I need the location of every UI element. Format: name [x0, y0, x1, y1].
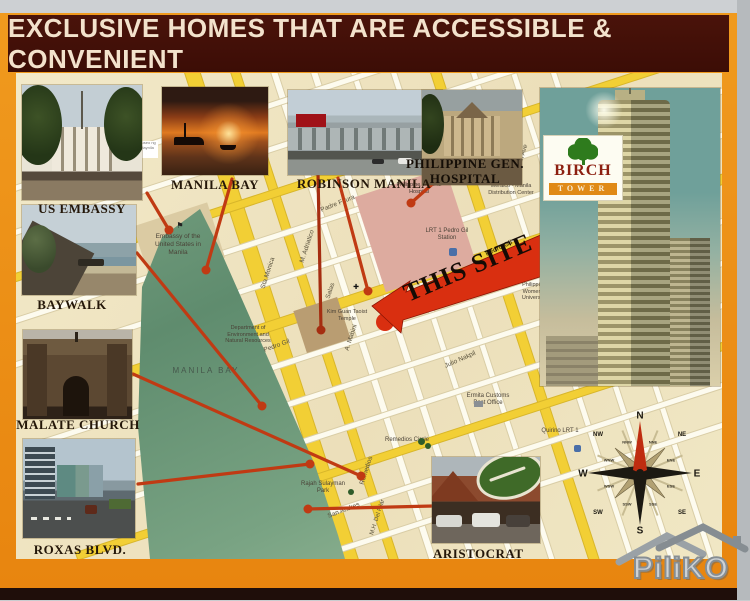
tower-antenna	[629, 88, 631, 94]
boat-silhouette-2	[220, 145, 236, 150]
map-label-manila-bay: MANILA BAY	[166, 366, 246, 376]
watermark: PiliKO	[615, 518, 750, 596]
photo-us-embassy	[22, 85, 142, 200]
compass-sse: SSE	[649, 502, 657, 507]
birch-tower-logo: BIRCH TOWER	[544, 136, 622, 200]
car-dark	[372, 159, 384, 164]
birch-sub-name: TOWER	[549, 183, 617, 195]
flag-icon: ⚑	[176, 221, 184, 231]
aristocrat-roof-gable	[432, 471, 478, 501]
photo-manila-bay	[162, 87, 268, 175]
robinson-window-band	[288, 128, 442, 150]
embassy-tree-right	[104, 87, 142, 161]
label-baywalk: BAYWALK	[37, 297, 106, 313]
baywalk-boat	[78, 259, 104, 266]
compass-nw: NW	[593, 432, 603, 438]
screenshot-root: { "chrome": {"top_strip_color": "#cdd0d3…	[0, 0, 750, 600]
map-label-taoist-temple: Kim Guan Taoist Temple	[324, 309, 370, 322]
boat-mast	[184, 123, 186, 139]
aristocrat-sign	[471, 457, 540, 507]
map-poster: Museo ng Maynila Embassy of the United S…	[16, 73, 722, 559]
robinson-red-sign	[296, 114, 326, 127]
map-label-customs: Ermita Customs Post Office	[460, 393, 516, 407]
aristocrat-car-3	[506, 515, 530, 527]
compass-ssw: SSW	[622, 502, 631, 507]
header-band: EXCLUSIVE HOMES THAT ARE ACCESSIBLE & CO…	[8, 15, 729, 72]
park-icon-south	[418, 438, 425, 445]
roxas-highrise	[25, 447, 55, 499]
compass-w: W	[578, 469, 587, 480]
window-side-strip	[737, 0, 750, 600]
label-aristocrat: ARISTOCRAT	[433, 546, 523, 559]
cross-icon: ✚	[352, 284, 360, 292]
boat-silhouette-1	[174, 137, 204, 145]
compass-wnw: WNW	[604, 458, 614, 463]
map-label-rajah-sulayman: Rajah Sulayman Park	[299, 481, 347, 495]
compass-ese: ESE	[667, 484, 675, 489]
aristocrat-car-1	[436, 515, 462, 527]
photo-roxas-blvd	[23, 439, 135, 538]
compass-ene: ENE	[667, 458, 675, 463]
compass-e: E	[694, 469, 701, 480]
church-tower-left	[27, 344, 47, 416]
tower-sun-glint	[582, 88, 626, 132]
church-tower-right	[107, 344, 127, 416]
label-philippine-gen-hospital: PHILIPPINE GEN. HOSPITAL	[405, 157, 525, 187]
tower-secondary-windows	[670, 238, 710, 386]
pgh-tree	[422, 94, 444, 154]
photo-aristocrat	[432, 457, 540, 543]
label-malate-church: MALATE CHURCH	[16, 417, 140, 433]
aristocrat-sign-script	[489, 466, 526, 482]
compass-sw: SW	[593, 510, 603, 516]
post-office-icon	[474, 401, 483, 407]
header-title: EXCLUSIVE HOMES THAT ARE ACCESSIBLE & CO…	[8, 13, 729, 75]
label-manila-bay: MANILA BAY	[171, 177, 259, 193]
rajah-park-icon	[348, 489, 354, 495]
roxas-median-green	[109, 499, 131, 509]
lrt-station-icon	[449, 248, 457, 256]
roxas-lane-dashes	[31, 517, 71, 520]
pgh-building	[444, 116, 500, 156]
compass-ne: NE	[678, 432, 686, 438]
aristocrat-car-2	[472, 513, 500, 527]
map-label-quirino-lrt: Quirino LRT 1	[540, 428, 580, 435]
embassy-flagpole	[81, 91, 83, 129]
compass-wsw: WSW	[604, 484, 614, 489]
roxas-buildings	[57, 465, 103, 497]
compass-n: N	[636, 411, 643, 422]
window-top-strip	[0, 0, 750, 13]
label-us-embassy: US EMBASSY	[38, 201, 126, 217]
lowrise-buildings	[546, 336, 598, 386]
roxas-vehicle	[85, 505, 97, 514]
map-label-us-embassy-poi: Embassy of the United States in Manila	[150, 233, 206, 256]
watermark-text: PiliKO	[633, 552, 729, 586]
compass-nnw: NNW	[622, 440, 632, 445]
label-roxas-blvd: ROXAS BLVD.	[34, 542, 126, 558]
compass-nne: NNE	[649, 440, 657, 445]
church-cross	[75, 332, 78, 342]
sunset-sun	[162, 87, 268, 175]
church-door-arch	[63, 376, 89, 416]
birch-tower-rendering: BIRCH TOWER	[540, 88, 720, 386]
map-label-denr: Department of Environment and Natural Re…	[221, 325, 275, 345]
map-label-lrt1-station: LRT 1 Pedro Gil Station	[422, 228, 472, 242]
birch-name: BIRCH	[544, 162, 622, 180]
photo-malate-church	[23, 330, 132, 419]
photo-baywalk	[22, 205, 136, 295]
pgh-pediment	[456, 102, 488, 118]
remedios-park-icon	[425, 443, 431, 449]
compass-se: SE	[678, 510, 686, 516]
baywalk-trees	[22, 225, 56, 273]
